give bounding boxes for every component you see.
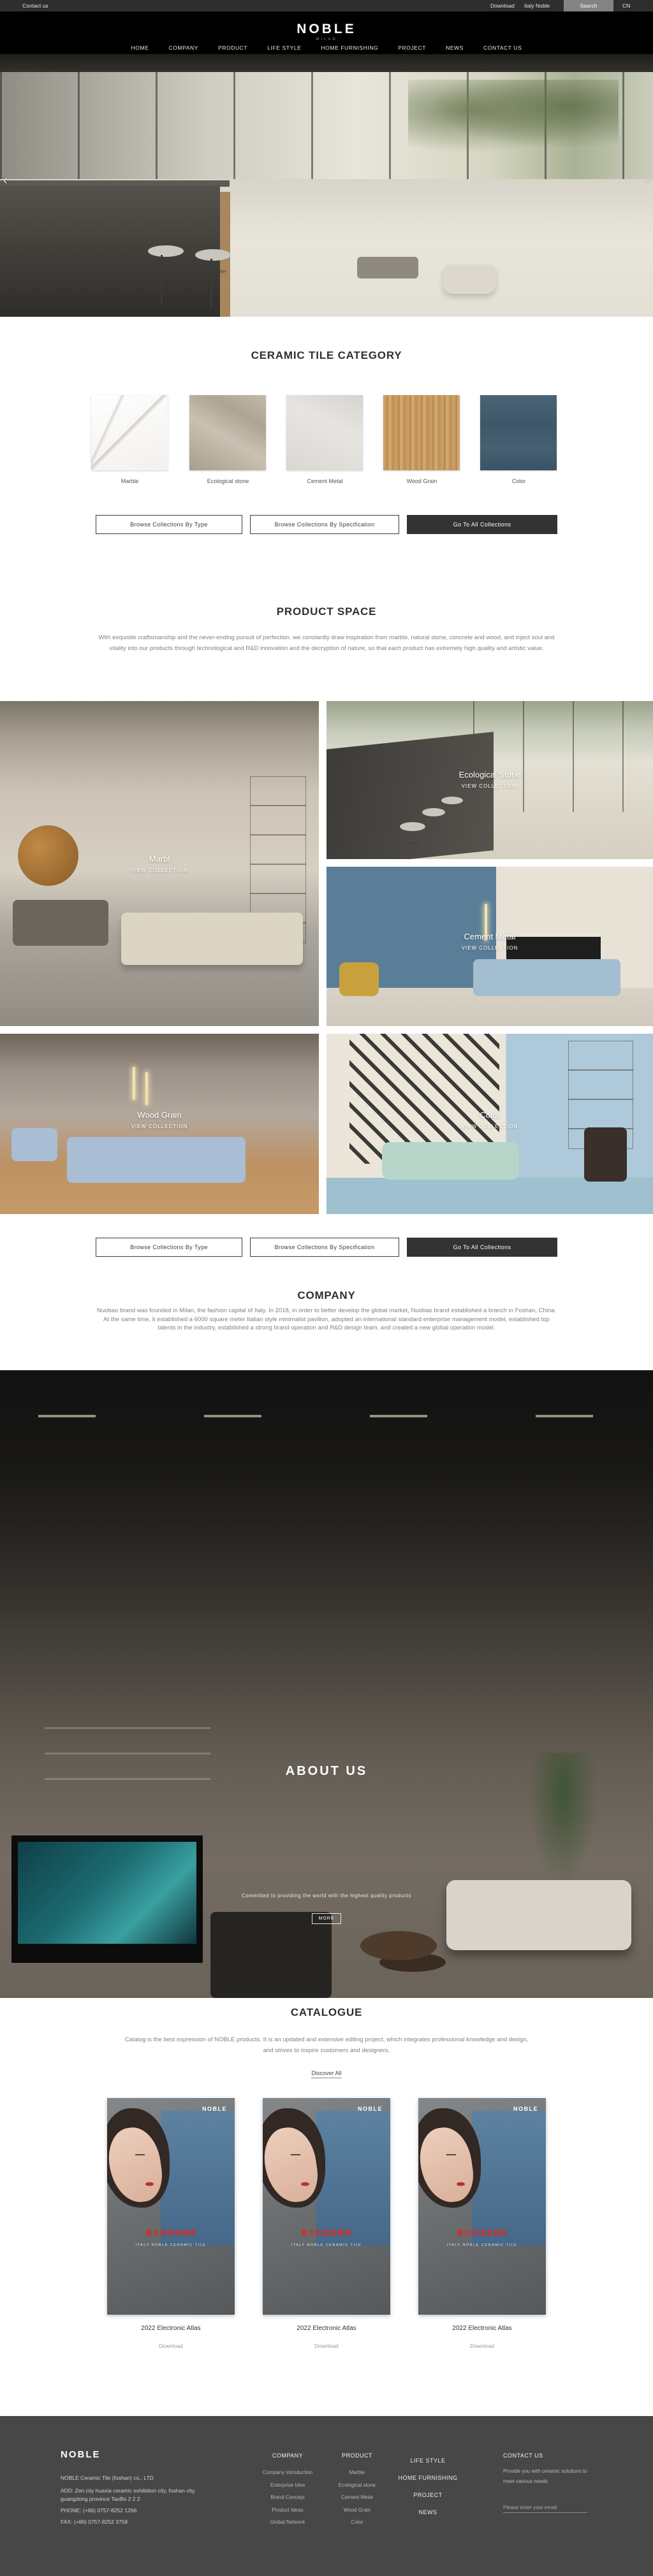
brand-logo[interactable]: NOBLE <box>0 22 653 37</box>
catalogue-download-2[interactable]: Download <box>263 2343 390 2349</box>
product-space-paragraph: With exquisite craftsmanship and the nev… <box>96 632 557 654</box>
window-mullions <box>473 701 653 812</box>
collection-buttons-row-2: Browse Collections By Type Browse Collec… <box>96 1238 557 1257</box>
cover-brand-logo: NOBLE <box>513 2106 538 2112</box>
cover-blue-panel <box>161 2111 235 2245</box>
footer-link[interactable]: Ecological stone <box>325 2479 389 2492</box>
hero-bench <box>357 257 418 279</box>
go-to-all-collections-button[interactable]: Go To All Collections <box>407 1238 557 1257</box>
catalogue-caption-2: 2022 Electronic Atlas <box>263 2325 390 2332</box>
top-utility-bar: Contact us Download Italy Noble Search C… <box>0 0 653 11</box>
footer-col-company-header[interactable]: COMPANY <box>249 2452 326 2459</box>
nav-contact-us[interactable]: CONTACT US <box>483 45 522 51</box>
hero-stool <box>195 249 231 261</box>
footer-contact-header[interactable]: CONTACT US <box>503 2452 594 2459</box>
view-collection-link[interactable]: VIEW COLLECTION <box>326 1124 653 1129</box>
catalogue-cover-1[interactable]: NOBLE 意大利诺宝瓷砖 ITALY NOBLE CERAMIC TILE <box>107 2098 235 2315</box>
nav-product[interactable]: PRODUCT <box>218 45 247 51</box>
footer-contact-text: Provide you with ceramic solutions to me… <box>503 2466 594 2486</box>
footer-nav-news[interactable]: NEWS <box>383 2504 473 2521</box>
footer-col-nav: LIFE STYLE HOME FURNISHING PROJECT NEWS <box>383 2452 473 2521</box>
category-tile-marble[interactable] <box>91 395 168 470</box>
footer-link[interactable]: Marble <box>325 2466 389 2479</box>
footer-link[interactable]: Cement Metal <box>325 2491 389 2504</box>
catalogue-section-title: CATALOGUE <box>0 2006 653 2019</box>
italy-noble-link[interactable]: Italy Noble <box>524 0 550 11</box>
footer-fax: FAX: (+86) 0757-8252 3758 <box>61 2518 220 2526</box>
hero-pouf <box>443 264 496 294</box>
category-label-cement-metal: Cement Metal <box>276 478 374 484</box>
site-header: NOBLE MILAN HOME COMPANY PRODUCT LIFE ST… <box>0 11 653 54</box>
cover-blue-panel <box>472 2111 546 2245</box>
cover-model-eye <box>291 2154 300 2155</box>
cover-title: 意大利诺宝瓷砖 <box>418 2228 546 2238</box>
about-us-banner: ABOUT US Committed to providing the worl… <box>0 1370 653 1998</box>
footer-phone: PHONE: (+86) 0757-8252 1266 <box>61 2507 220 2515</box>
hero-stool-leg <box>210 259 212 308</box>
cover-model-lips <box>457 2182 465 2186</box>
ceiling-lights <box>38 1415 612 1417</box>
browse-by-specification-button[interactable]: Browse Collections By Specification <box>250 515 399 534</box>
browse-by-type-button[interactable]: Browse Collections By Type <box>96 515 242 534</box>
footer-contact-block: CONTACT US Provide you with ceramic solu… <box>503 2452 594 2513</box>
category-tile-cement-metal[interactable] <box>286 395 363 470</box>
blue-armchair <box>11 1128 57 1161</box>
catalogue-cover-2[interactable]: NOBLE 意大利诺宝瓷砖 ITALY NOBLE CERAMIC TILE <box>263 2098 390 2315</box>
hero-stool <box>148 245 184 257</box>
cover-subtitle: ITALY NOBLE CERAMIC TILE <box>263 2243 390 2247</box>
cover-model-eye <box>446 2154 456 2155</box>
footer-nav-project[interactable]: PROJECT <box>383 2487 473 2504</box>
language-toggle-cn[interactable]: CN <box>622 0 630 11</box>
mirror-light <box>145 1072 148 1105</box>
sofa-shape <box>13 900 108 946</box>
about-us-tagline: Committed to providing the world with th… <box>0 1893 653 1899</box>
hero-carousel: ‹ › <box>0 54 653 317</box>
footer-col-product-header[interactable]: PRODUCT <box>325 2452 389 2459</box>
footer-link[interactable]: Brand Concept <box>249 2491 326 2504</box>
cover-blue-panel <box>316 2111 390 2245</box>
footer-company-name: NOBLE Ceramic Tile (foshan) co., LTD <box>61 2474 220 2482</box>
white-sofa <box>446 1880 631 1950</box>
cover-model-lips <box>145 2182 154 2186</box>
space-card-color[interactable]: Color VIEW COLLECTION <box>326 1034 653 1214</box>
footer-col-company: COMPANY Company Introduction Enterprise … <box>249 2452 326 2529</box>
nav-company[interactable]: COMPANY <box>168 45 198 51</box>
footer-nav-life-style[interactable]: LIFE STYLE <box>383 2452 473 2470</box>
browse-by-type-button[interactable]: Browse Collections By Type <box>96 1238 242 1257</box>
tv-frame <box>11 1835 203 1963</box>
stone-counter <box>326 732 494 859</box>
discover-all-wrap: Discover All <box>0 2070 653 2076</box>
view-collection-link[interactable]: VIEW COLLECTION <box>0 867 319 873</box>
hero-ceiling <box>0 54 653 72</box>
collection-buttons-row-1: Browse Collections By Type Browse Collec… <box>96 515 557 534</box>
catalogue-download-3[interactable]: Download <box>418 2343 546 2349</box>
cover-subtitle: ITALY NOBLE CERAMIC TILE <box>418 2243 546 2247</box>
space-name: Cement Metal <box>326 932 653 941</box>
mirror-light <box>133 1067 135 1100</box>
footer-link[interactable]: Product Ideas <box>249 2504 326 2517</box>
space-label-marble: Marbl VIEW COLLECTION <box>0 854 319 873</box>
footer-link[interactable]: Company Introduction <box>249 2466 326 2479</box>
discover-all-link[interactable]: Discover All <box>311 2070 341 2078</box>
brand-logo-subtitle: MILAN <box>0 38 653 41</box>
nav-project[interactable]: PROJECT <box>398 45 426 51</box>
blue-floor <box>326 1178 653 1214</box>
view-collection-link[interactable]: VIEW COLLECTION <box>326 783 653 789</box>
site-footer: NOBLE NOBLE Ceramic Tile (foshan) co., L… <box>0 2416 653 2576</box>
nav-life-style[interactable]: LIFE STYLE <box>267 45 301 51</box>
cover-brand-logo: NOBLE <box>202 2106 227 2112</box>
carousel-prev-icon[interactable]: ‹ <box>3 174 8 187</box>
coffee-table <box>360 1931 437 1960</box>
about-us-title: ABOUT US <box>0 1764 653 1779</box>
category-label-color: Color <box>470 478 568 484</box>
space-label-cement-metal: Cement Metal VIEW COLLECTION <box>326 932 653 951</box>
category-section-title: CERAMIC TILE CATEGORY <box>0 349 653 362</box>
footer-link[interactable]: Global Network <box>249 2516 326 2529</box>
product-space-title: PRODUCT SPACE <box>0 605 653 618</box>
counter-stool <box>400 822 425 831</box>
catalogue-caption-3: 2022 Electronic Atlas <box>418 2325 546 2332</box>
category-tile-color[interactable] <box>480 395 557 470</box>
footer-link[interactable]: Color <box>325 2516 389 2529</box>
footer-col-product: PRODUCT Marble Ecological stone Cement M… <box>325 2452 389 2529</box>
cover-brand-logo: NOBLE <box>358 2106 383 2112</box>
catalogue-download-1[interactable]: Download <box>107 2343 235 2349</box>
sofa-shape <box>121 913 303 965</box>
page: Contact us Download Italy Noble Search C… <box>0 0 653 2576</box>
footer-nav-home-furnishing[interactable]: HOME FURNISHING <box>383 2470 473 2487</box>
cover-subtitle: ITALY NOBLE CERAMIC TILE <box>107 2243 235 2247</box>
space-name: Ecological Stone <box>326 770 653 779</box>
category-label-marble: Marble <box>81 478 179 484</box>
catalogue-cover-3[interactable]: NOBLE 意大利诺宝瓷砖 ITALY NOBLE CERAMIC TILE <box>418 2098 546 2315</box>
space-card-marble[interactable]: Marbl VIEW COLLECTION <box>0 701 319 1026</box>
footer-link[interactable]: Enterprise Idea <box>249 2479 326 2492</box>
search-button[interactable]: Search <box>564 0 613 11</box>
category-label-wood-grain: Wood Grain <box>373 478 471 484</box>
view-collection-link[interactable]: VIEW COLLECTION <box>0 1124 319 1129</box>
space-name: Marbl <box>0 854 319 864</box>
space-card-cement-metal[interactable]: Cement Metal VIEW COLLECTION <box>326 867 653 1026</box>
space-label-wood-grain: Wood Grain VIEW COLLECTION <box>0 1110 319 1129</box>
nav-home[interactable]: HOME <box>131 45 149 51</box>
catalogue-caption-1: 2022 Electronic Atlas <box>107 2325 235 2332</box>
download-link[interactable]: Download <box>490 0 515 11</box>
browse-by-specification-button[interactable]: Browse Collections By Specification <box>250 1238 399 1257</box>
space-name: Wood Grain <box>0 1110 319 1120</box>
space-card-wood-grain[interactable]: Wood Grain VIEW COLLECTION <box>0 1034 319 1214</box>
category-tile-ecological-stone[interactable] <box>189 395 266 470</box>
email-input[interactable] <box>503 2503 587 2513</box>
about-more-button[interactable]: MORE <box>312 1913 341 1924</box>
blue-sofa <box>473 959 620 996</box>
cover-model-lips <box>301 2182 309 2186</box>
space-name: Color <box>326 1110 653 1120</box>
company-section-title: COMPANY <box>0 1289 653 1302</box>
hero-greenery <box>408 80 619 156</box>
nav-news[interactable]: NEWS <box>446 45 464 51</box>
cover-title: 意大利诺宝瓷砖 <box>107 2228 235 2238</box>
footer-address: ADD: Zen city huaxia ceramic exhibition … <box>61 2487 220 2503</box>
catalogue-paragraph: Catalog is the best expression of NOBLE … <box>122 2034 531 2056</box>
yellow-chair <box>339 962 378 996</box>
space-card-ecological-stone[interactable]: Ecological Stone VIEW COLLECTION <box>326 701 653 859</box>
blue-sofa <box>67 1137 246 1183</box>
cover-model-eye <box>135 2154 145 2155</box>
hero-stool-leg <box>161 255 163 305</box>
footer-link[interactable]: Wood Grain <box>325 2504 389 2517</box>
hero-kitchen-island <box>0 185 220 317</box>
dark-armchair <box>210 1912 332 1998</box>
cover-title: 意大利诺宝瓷砖 <box>263 2228 390 2238</box>
company-paragraph: Nuobao brand was founded in Milan, the f… <box>96 1306 557 1333</box>
go-to-all-collections-button[interactable]: Go To All Collections <box>407 515 557 534</box>
counter-stool <box>441 797 463 804</box>
view-collection-link[interactable]: VIEW COLLECTION <box>326 945 653 951</box>
nav-home-furnishing[interactable]: HOME FURNISHING <box>321 45 378 51</box>
counter-stool <box>422 808 445 816</box>
space-label-color: Color VIEW COLLECTION <box>326 1110 653 1129</box>
category-tile-wood-grain[interactable] <box>383 395 460 470</box>
mint-sofa <box>382 1142 519 1180</box>
contact-us-link[interactable]: Contact us <box>22 0 48 11</box>
carousel-next-icon[interactable]: › <box>645 174 650 187</box>
dark-armchair <box>584 1127 627 1182</box>
footer-logo: NOBLE <box>61 2449 101 2460</box>
space-label-ecological-stone: Ecological Stone VIEW COLLECTION <box>326 770 653 789</box>
category-label-ecological-stone: Ecological stone <box>179 478 277 484</box>
main-navigation: HOME COMPANY PRODUCT LIFE STYLE HOME FUR… <box>0 45 653 51</box>
